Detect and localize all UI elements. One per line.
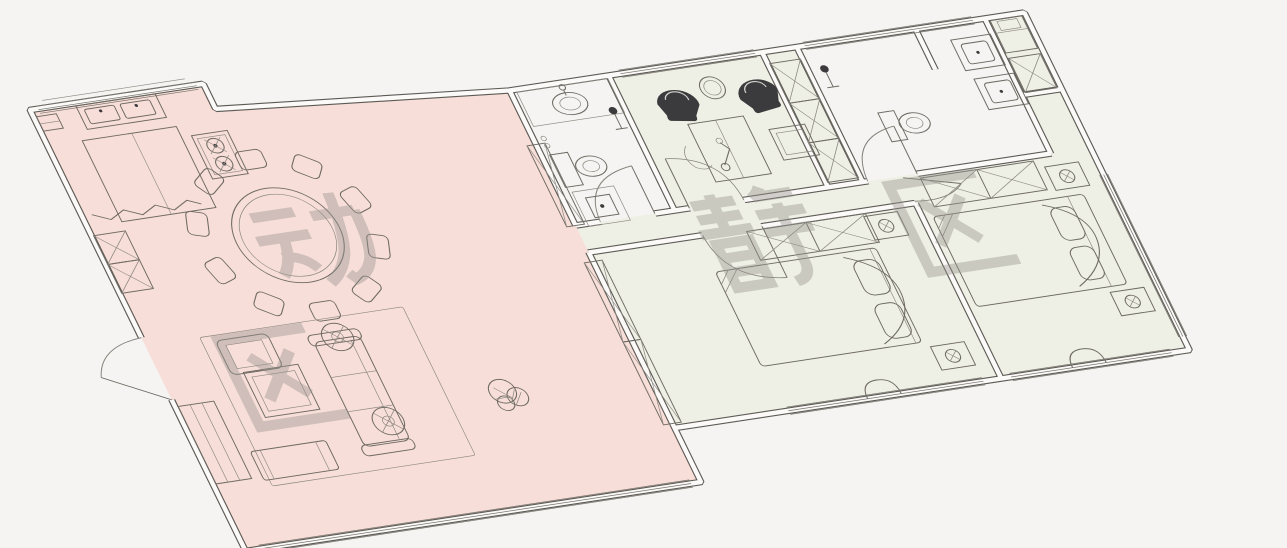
floor-plan-drawing — [0, 0, 1287, 548]
toilet — [550, 148, 614, 188]
shower-head — [817, 64, 839, 87]
floor-plan-canvas — [0, 0, 1287, 548]
toilet — [878, 106, 937, 142]
bathroom1-door — [577, 166, 655, 222]
